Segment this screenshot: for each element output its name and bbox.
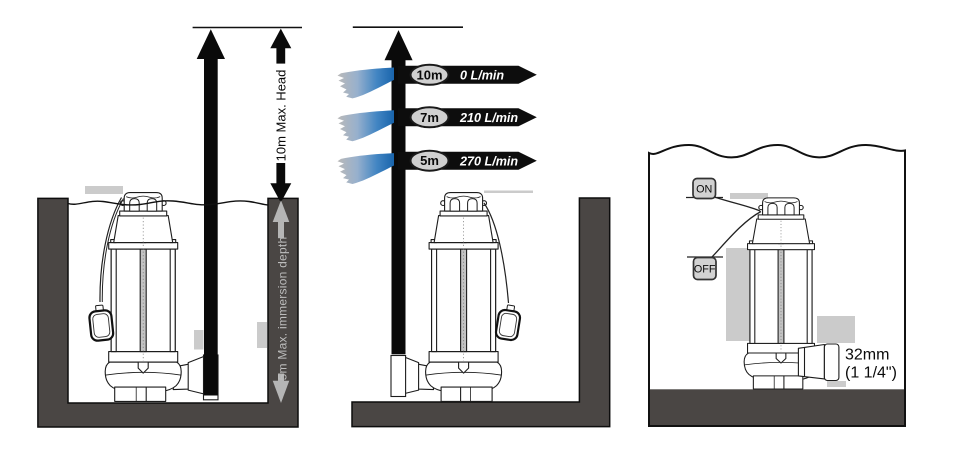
svg-text:270 L/min: 270 L/min <box>459 155 518 169</box>
svg-text:5m: 5m <box>420 153 439 168</box>
svg-text:7m: 7m <box>420 110 439 125</box>
svg-text:ON: ON <box>696 184 712 196</box>
svg-text:32mm: 32mm <box>845 347 889 364</box>
svg-text:(1 1/4"): (1 1/4") <box>845 365 897 382</box>
svg-text:OFF: OFF <box>694 264 716 276</box>
svg-text:210 L/min: 210 L/min <box>459 111 518 125</box>
svg-text:10m: 10m <box>416 67 442 82</box>
svg-text:10m Max. Head: 10m Max. Head <box>273 70 288 162</box>
svg-text:0 L/min: 0 L/min <box>460 69 504 83</box>
svg-text:5m Max. immersion depth: 5m Max. immersion depth <box>275 237 289 381</box>
